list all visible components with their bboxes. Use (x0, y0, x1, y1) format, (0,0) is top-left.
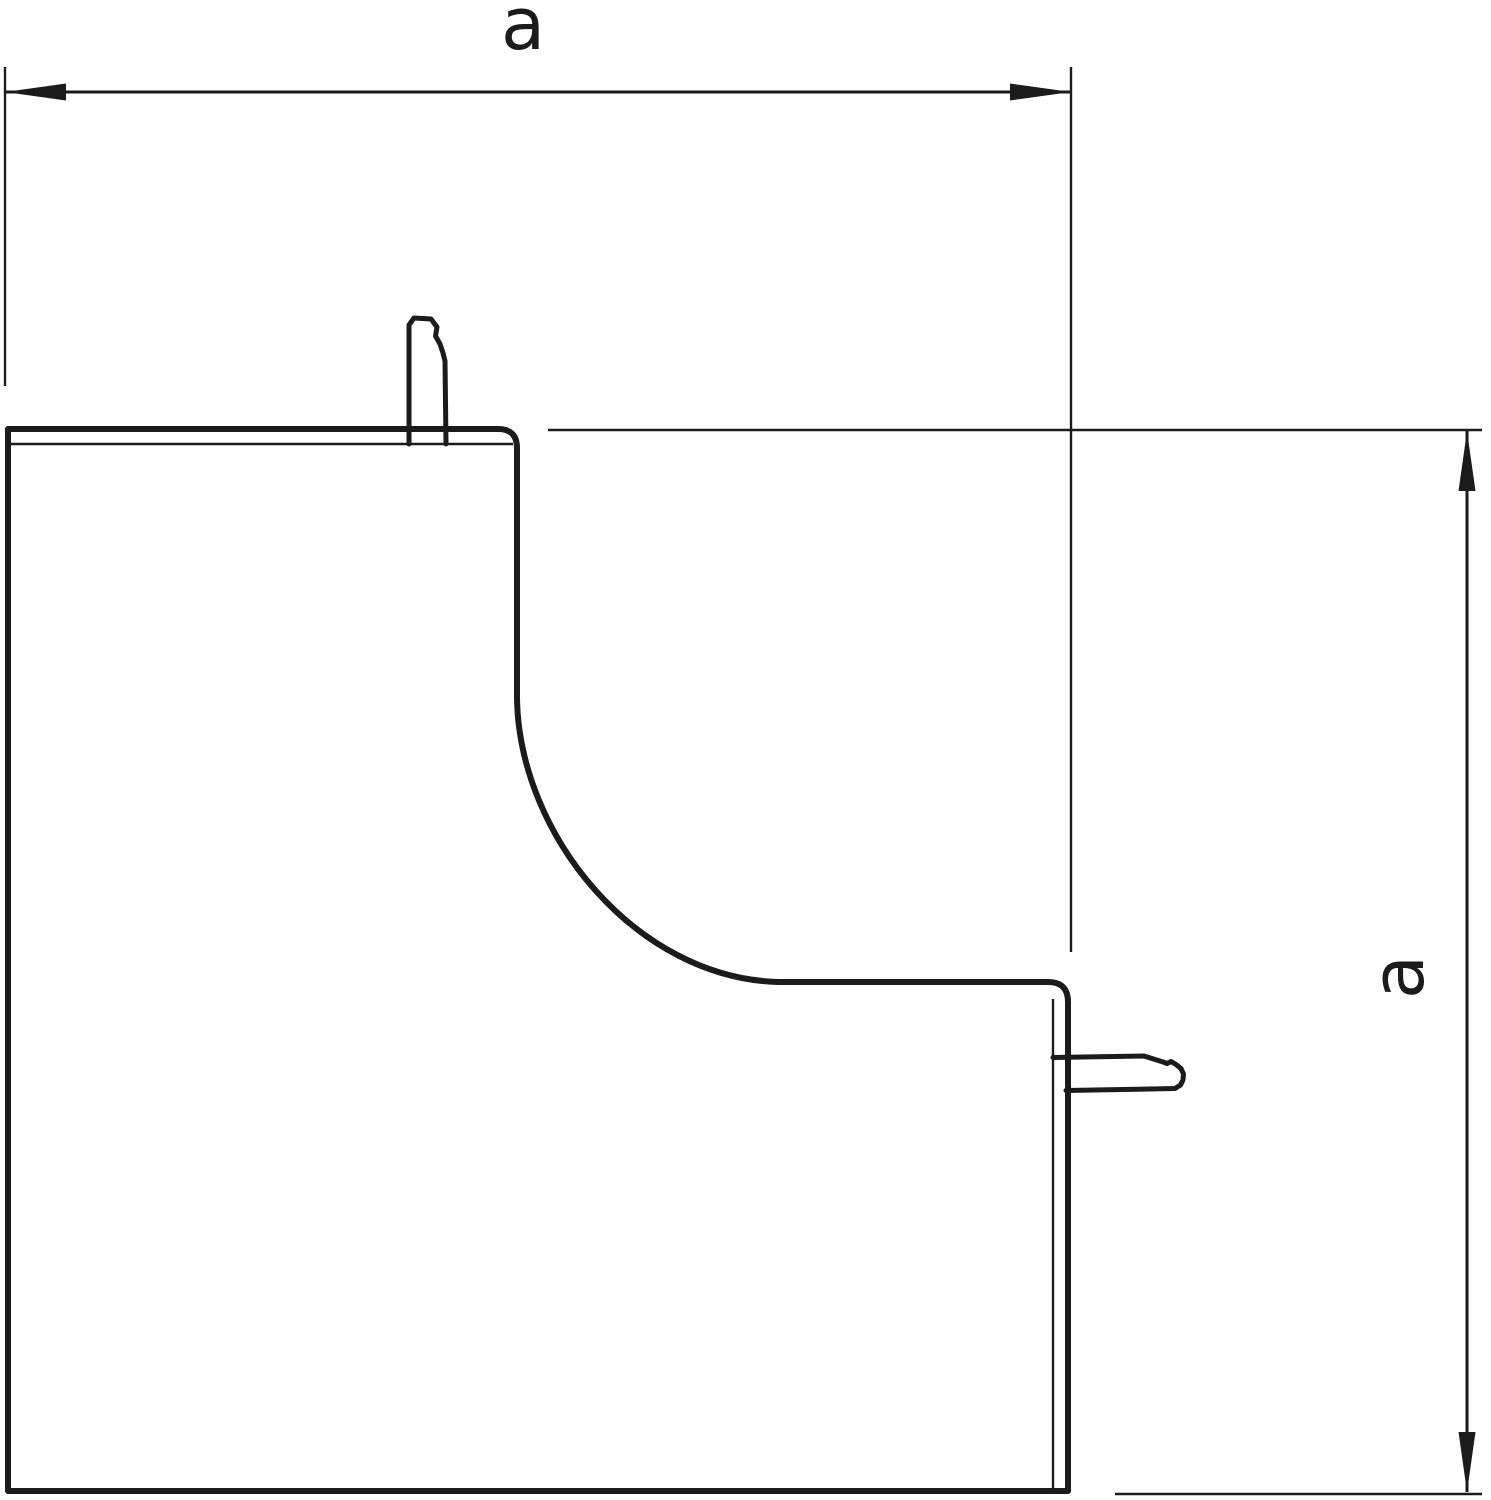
technical-drawing-canvas: a a (0, 0, 1491, 1500)
technical-drawing: a a (0, 0, 1491, 1500)
height-dimension-label: a (1356, 955, 1440, 999)
width-dimension-label: a (501, 0, 545, 66)
background (0, 0, 1491, 1500)
